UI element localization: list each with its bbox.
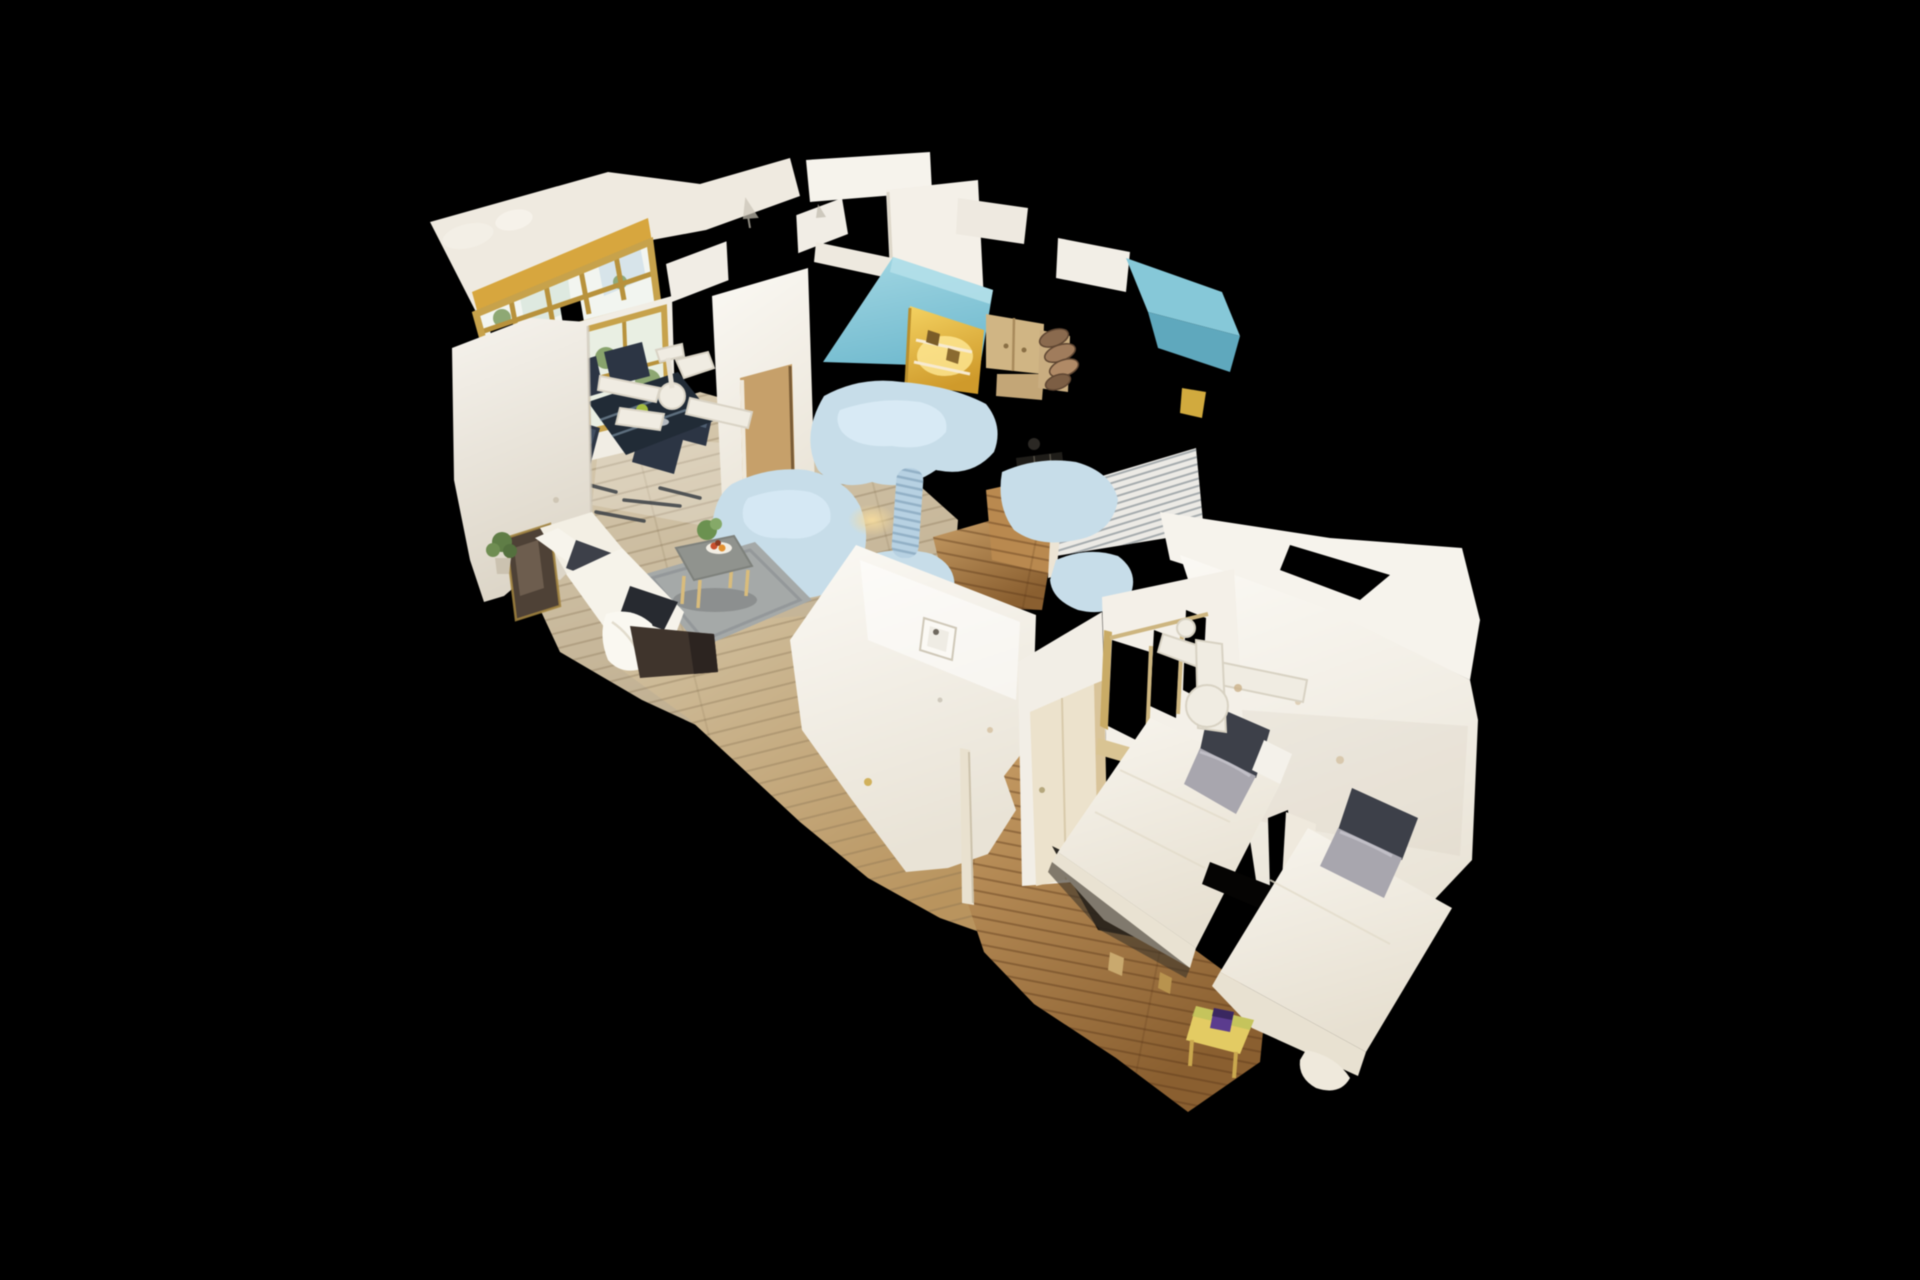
- backsplash-glimpse: [1180, 388, 1206, 418]
- ceiling-light-glow: [848, 504, 896, 536]
- plant-pot: [495, 558, 511, 574]
- scene-canvas[interactable]: [0, 0, 1920, 1280]
- dollhouse-viewer: [0, 0, 1920, 1280]
